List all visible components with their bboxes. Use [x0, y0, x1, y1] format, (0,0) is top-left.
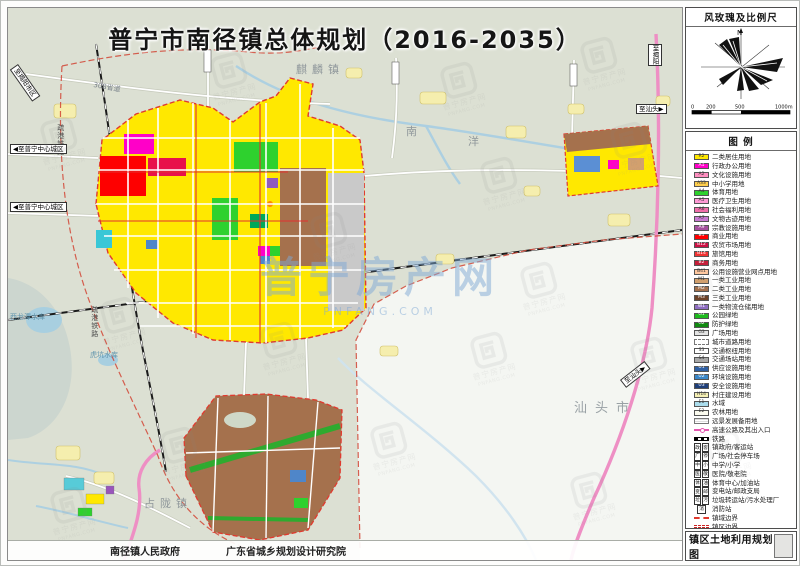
legend-label: 镇政府/客运站 — [712, 444, 753, 451]
legend-swatch-fill: R2 — [694, 154, 709, 160]
legend-title: 图 例 — [686, 132, 796, 151]
legend-swatch-sym: 政客 — [694, 445, 709, 451]
legend-item: H14村庄建设用地 — [694, 391, 796, 400]
legend-swatch-fill: A33 — [694, 181, 709, 187]
legend-swatch-sym: 消 — [694, 506, 709, 512]
legend-label: 公用设施营业网点用地 — [712, 269, 777, 276]
legend-swatch-fill: B12 — [694, 242, 709, 248]
legend-label: 中学/小学 — [712, 462, 740, 469]
legend-label: 二类居住用地 — [712, 154, 751, 161]
legend-label: 交通枢纽用地 — [712, 348, 751, 355]
content: 普宁市南径镇总体规划（2016-2035） 麒麟镇南洋汕头市占陇镇西龙潭水库虎坑… — [7, 7, 793, 561]
legend-swatch-fill: A4 — [694, 190, 709, 196]
legend-item: A9宗教设施用地 — [694, 223, 796, 232]
legend-swatch-fill: H14 — [694, 392, 709, 398]
legend-swatch-fill: S4 — [694, 357, 709, 363]
legend-swatch-fill: S3 — [694, 348, 709, 354]
legend-swatch-fill: G3 — [694, 330, 709, 336]
legend-item: A1行政办公用地 — [694, 162, 796, 171]
legend-label: 水域 — [712, 400, 725, 407]
svg-text:500: 500 — [735, 105, 745, 111]
credits-bar: 南径镇人民政府 广东省城乡规划设计研究院 — [8, 540, 682, 560]
legend-label: 文化设施用地 — [712, 172, 751, 179]
legend-swatch-fill: A7 — [694, 216, 709, 222]
legend-label: 农贸市场用地 — [712, 242, 751, 249]
legend-item: 医敬医院/敬老院 — [694, 470, 796, 479]
credit-government: 南径镇人民政府 — [110, 543, 180, 558]
legend-item: 高速公路及其出入口 — [694, 426, 796, 435]
legend-item: 政客镇政府/客运站 — [694, 443, 796, 452]
legend-item: M2二类工业用地 — [694, 285, 796, 294]
legend-item: 镇域边界 — [694, 514, 796, 523]
watermark-logo: 普宁房产网PNFANG.COM — [553, 465, 630, 531]
legend-label: 村庄建设用地 — [712, 392, 751, 399]
legend-label: 消防站 — [712, 506, 732, 513]
legend-item: 铁路 — [694, 435, 796, 444]
legend-swatch-fill: A1 — [694, 163, 709, 169]
map-label: 西龙潭水库 — [10, 314, 45, 322]
legend-swatch-sym: 垃污 — [694, 497, 709, 503]
legend-item: U3安全设施用地 — [694, 382, 796, 391]
legend-label: 社会福利用地 — [712, 207, 751, 214]
legend-label: 一类工业用地 — [712, 277, 751, 284]
legend-swatch-fill: B2 — [694, 260, 709, 266]
map-label: 麒麟镇 — [296, 64, 344, 76]
sheet-number-box — [774, 534, 793, 558]
legend-swatch-fill: B1 — [694, 234, 709, 240]
legend-swatch-exp — [694, 427, 709, 433]
legend-item: S4交通场站用地 — [694, 355, 796, 364]
legend-item: A5医疗卫生用地 — [694, 197, 796, 206]
legend-label: 环境设施用地 — [712, 374, 751, 381]
legend-label: 广场用地 — [712, 330, 738, 337]
legend-item: A6社会福利用地 — [694, 206, 796, 215]
legend-item: B12农贸市场用地 — [694, 241, 796, 250]
sheet-box: 镇区土地利用规划图 — [685, 531, 797, 561]
map-label: 南 — [406, 126, 422, 138]
legend-label: 宗教设施用地 — [712, 225, 751, 232]
legend-label: 铁路 — [712, 436, 725, 443]
legend-swatch-fill: U3 — [694, 383, 709, 389]
legend-item: B2商务用地 — [694, 259, 796, 268]
legend-item: U1供应设施用地 — [694, 364, 796, 373]
legend-label: 广场/社会停车场 — [712, 453, 760, 460]
watermark-logo: 普宁房产网PNFANG.COM — [243, 315, 320, 381]
legend-swatch-fill: U2 — [694, 374, 709, 380]
map-label: 至揭阳市区 — [10, 64, 40, 101]
scale-bar: 0 200 500 1000m — [689, 103, 793, 118]
watermark-logo: 普宁房产网PNFANG.COM — [193, 45, 270, 111]
svg-text:200: 200 — [706, 105, 716, 111]
legend-item: G3广场用地 — [694, 329, 796, 338]
map-label: 疏港铁路 — [90, 306, 98, 338]
legend-swatch-fill: A6 — [694, 207, 709, 213]
legend-swatch-road — [694, 339, 709, 345]
map-title: 普宁市南径镇总体规划（2016-2035） — [8, 20, 682, 55]
legend-label: 体育中心/加油站 — [712, 480, 760, 487]
legend-label: 二类工业用地 — [712, 286, 751, 293]
legend-item: E2农林用地 — [694, 408, 796, 417]
legend-swatch-fill: B41 — [694, 269, 709, 275]
legend-label: 交通场站用地 — [712, 356, 751, 363]
watermark-logo: 普宁房产网PNFANG.COM — [33, 480, 110, 546]
map-label: 308省道 — [93, 82, 121, 94]
legend-label: 三类工业用地 — [712, 295, 751, 302]
legend-label: 商务用地 — [712, 260, 738, 267]
legend-box: 图 例 R2二类居住用地A1行政办公用地A2文化设施用地A33中小学用地A4体育… — [685, 131, 797, 529]
legend-swatch-sym: 广停 — [694, 453, 709, 459]
legend-item: A2文化设施用地 — [694, 171, 796, 180]
legend-list: R2二类居住用地A1行政办公用地A2文化设施用地A33中小学用地A4体育用地A5… — [686, 151, 796, 529]
windrose-title: 风玫瑰及比例尺 — [686, 8, 796, 27]
legend-label: 高速公路及其出入口 — [712, 427, 771, 434]
legend-label: 垃圾转运站/污水处理厂 — [712, 497, 779, 504]
legend-swatch-fill: G1 — [694, 313, 709, 319]
legend-item: A4体育用地 — [694, 188, 796, 197]
legend-swatch-fill: A2 — [694, 172, 709, 178]
legend-swatch-sym: 医敬 — [694, 471, 709, 477]
legend-item: G2防护绿地 — [694, 320, 796, 329]
map-labels-layer: 麒麟镇南洋汕头市占陇镇西龙潭水库虎坑水库疏港铁路疏港铁路308省道◀至普宁中心城… — [8, 8, 682, 560]
legend-swatch-fill: E1 — [694, 401, 709, 407]
legend-label: 安全设施用地 — [712, 383, 751, 390]
legend-label: 文物古迹用地 — [712, 216, 751, 223]
legend-item: U2环境设施用地 — [694, 373, 796, 382]
legend-swatch-rail — [694, 437, 709, 441]
watermark-logo: 普宁房产网PNFANG.COM — [423, 55, 500, 121]
legend-item: G1公园绿地 — [694, 311, 796, 320]
legend-label: 一类物流仓储用地 — [712, 304, 764, 311]
watermark-logo: 普宁房产网PNFANG.COM — [143, 420, 220, 486]
legend-swatch-fill: G2 — [694, 322, 709, 328]
legend-item: 垃污垃圾转运站/污水处理厂 — [694, 496, 796, 505]
map-label: 汕头市 — [574, 402, 637, 416]
legend-label: 医院/敬老院 — [712, 471, 747, 478]
legend-item: B41公用设施营业网点用地 — [694, 267, 796, 276]
legend-label: 旅馆用地 — [712, 251, 738, 258]
sheet-title: 镇区土地利用规划图 — [689, 531, 774, 561]
legend-item: A33中小学用地 — [694, 179, 796, 188]
legend-label: 城市道路用地 — [712, 339, 751, 346]
legend-swatch-fill: E2 — [694, 410, 709, 416]
side-panel: 风玫瑰及比例尺 — [685, 7, 797, 561]
legend-label: 远景发展备用地 — [712, 418, 758, 425]
legend-item: 城市道路用地 — [694, 338, 796, 347]
map-label: 虎坑水库 — [90, 352, 118, 360]
legend-swatch-reserve — [694, 418, 709, 424]
map-label: 占陇镇 — [144, 498, 192, 510]
legend-swatch-bnd2 — [694, 525, 709, 528]
north-label: N — [737, 29, 742, 37]
legend-swatch-fill: B14 — [694, 251, 709, 257]
legend-label: 变电站/邮政支局 — [712, 488, 760, 495]
page: 普宁市南径镇总体规划（2016-2035） 麒麟镇南洋汕头市占陇镇西龙潭水库虎坑… — [0, 0, 800, 566]
legend-swatch-bnd1 — [694, 517, 709, 519]
map-label: 至汕头▶ — [636, 104, 667, 114]
svg-text:1000m: 1000m — [775, 105, 793, 111]
legend-label: 医疗卫生用地 — [712, 198, 751, 205]
legend-item: 体油体育中心/加油站 — [694, 478, 796, 487]
legend-item: A7文物古迹用地 — [694, 215, 796, 224]
watermark-logo: 普宁房产网PNFANG.COM — [503, 255, 580, 321]
legend-label: 行政办公用地 — [712, 163, 751, 170]
legend-item: 广停广场/社会停车场 — [694, 452, 796, 461]
legend-swatch-sym: 中小 — [694, 462, 709, 468]
legend-swatch-fill: W1 — [694, 304, 709, 310]
legend-swatch-fill: M3 — [694, 295, 709, 301]
legend-label: 商业用地 — [712, 233, 738, 240]
legend-swatch-fill: U1 — [694, 366, 709, 372]
watermark-logo: 普宁房产网PNFANG.COM — [463, 150, 540, 216]
legend-label: 防护绿地 — [712, 321, 738, 328]
legend-item: B1商业用地 — [694, 232, 796, 241]
legend-item: M3三类工业用地 — [694, 294, 796, 303]
map-label: 至汕头▶ — [620, 361, 650, 388]
legend-item: 远景发展备用地 — [694, 417, 796, 426]
watermark-logo: 普宁房产网PNFANG.COM — [593, 115, 670, 181]
legend-swatch-fill: M2 — [694, 286, 709, 292]
legend-item: M1一类工业用地 — [694, 276, 796, 285]
legend-label: 供应设施用地 — [712, 365, 751, 372]
map-label: ◀至普宁中心城区 — [10, 144, 67, 154]
windrose-box: 风玫瑰及比例尺 — [685, 7, 797, 129]
legend-item: 中小中学/小学 — [694, 461, 796, 470]
watermark-logo: 普宁房产网PNFANG.COM — [293, 205, 370, 271]
legend-swatch-fill: A5 — [694, 198, 709, 204]
legend-swatch-sym: 变邮 — [694, 489, 709, 495]
watermark-logo: 普宁房产网PNFANG.COM — [613, 330, 683, 396]
watermark-logo: 普宁房产网PNFANG.COM — [353, 415, 430, 481]
windrose-icon: N — [689, 27, 793, 103]
svg-text:0: 0 — [691, 105, 694, 111]
legend-swatch-fill: M1 — [694, 278, 709, 284]
legend-label: 农林用地 — [712, 409, 738, 416]
legend-item: B14旅馆用地 — [694, 250, 796, 259]
legend-item: 消消防站 — [694, 505, 796, 514]
map-area: 普宁市南径镇总体规划（2016-2035） 麒麟镇南洋汕头市占陇镇西龙潭水库虎坑… — [7, 7, 683, 561]
legend-item: S3交通枢纽用地 — [694, 347, 796, 356]
legend-swatch-sym: 体油 — [694, 480, 709, 486]
legend-item: 镇区边界 — [694, 522, 796, 529]
legend-item: R2二类居住用地 — [694, 153, 796, 162]
legend-item: 变邮变电站/邮政支局 — [694, 487, 796, 496]
legend-label: 体育用地 — [712, 189, 738, 196]
legend-label: 镇区边界 — [712, 524, 738, 529]
watermark-logo: 普宁房产网PNFANG.COM — [453, 325, 530, 391]
credit-institute: 广东省城乡规划设计研究院 — [226, 543, 346, 558]
map-label: ◀至普宁中心城区 — [10, 202, 67, 212]
legend-swatch-fill: A9 — [694, 225, 709, 231]
legend-label: 镇域边界 — [712, 515, 738, 522]
legend-label: 公园绿地 — [712, 312, 738, 319]
map-label: 洋 — [468, 136, 484, 148]
legend-label: 中小学用地 — [712, 181, 745, 188]
legend-item: E1水域 — [694, 399, 796, 408]
legend-item: W1一类物流仓储用地 — [694, 303, 796, 312]
